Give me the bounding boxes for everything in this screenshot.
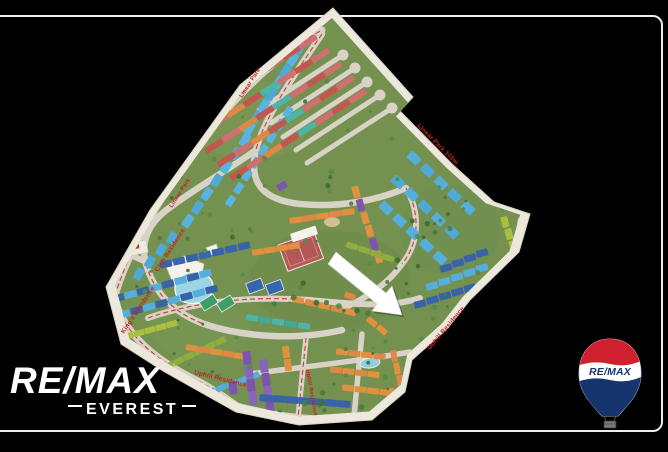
- tree: [342, 309, 345, 312]
- tree: [177, 319, 180, 322]
- tree: [320, 390, 326, 396]
- tree: [441, 385, 446, 390]
- cul-de-sac: [338, 50, 349, 61]
- tree: [423, 79, 426, 82]
- tree: [506, 294, 511, 299]
- tree: [366, 361, 370, 365]
- building-row: [259, 394, 272, 402]
- tree: [365, 311, 371, 317]
- tree: [511, 389, 515, 393]
- building-row: [337, 400, 350, 408]
- building-row: [179, 111, 199, 127]
- tree: [332, 382, 335, 385]
- divider-line: [182, 405, 196, 408]
- tree: [446, 305, 449, 308]
- tree: [405, 282, 408, 285]
- tree: [230, 229, 233, 232]
- office-name-row: EVEREST: [68, 402, 196, 418]
- tree: [300, 280, 306, 286]
- tree: [433, 222, 436, 225]
- tree: [489, 39, 492, 42]
- building-row: [272, 395, 285, 403]
- building-row: [430, 102, 441, 113]
- tree: [446, 212, 450, 216]
- building-row: [416, 90, 427, 101]
- tree: [382, 374, 388, 380]
- tree: [288, 301, 291, 304]
- tree: [502, 286, 507, 291]
- tree: [235, 336, 239, 340]
- building-row: [444, 114, 455, 125]
- tree: [483, 21, 486, 24]
- tree: [431, 317, 436, 322]
- tree: [444, 293, 447, 296]
- tree: [375, 14, 380, 19]
- tree: [385, 280, 389, 284]
- tree: [208, 212, 213, 217]
- building-row: [285, 396, 298, 404]
- tree: [126, 174, 129, 177]
- building-row: [373, 353, 386, 360]
- tree: [171, 125, 175, 129]
- tree: [202, 412, 205, 415]
- building-row: [196, 100, 216, 116]
- tree: [202, 248, 207, 253]
- cul-de-sac: [362, 77, 373, 88]
- basket-rope: [614, 416, 616, 421]
- tree: [514, 72, 517, 75]
- building-row: [367, 387, 380, 394]
- building-row: [259, 359, 269, 373]
- tree: [319, 400, 324, 405]
- tree: [435, 121, 439, 125]
- tree: [312, 80, 315, 83]
- building-row: [330, 366, 343, 373]
- remax-balloon-logo: RE/MAX: [573, 336, 647, 430]
- tree: [474, 311, 479, 316]
- tree: [108, 33, 114, 39]
- tree: [145, 71, 148, 74]
- tree: [394, 22, 397, 25]
- tree: [135, 285, 138, 288]
- tree: [440, 43, 443, 46]
- tree: [182, 142, 187, 147]
- tree: [157, 236, 161, 240]
- tree: [163, 176, 166, 179]
- tree: [395, 177, 399, 181]
- building-row: [454, 82, 465, 93]
- tree: [374, 40, 378, 44]
- tree: [438, 219, 442, 223]
- remax-everest-logo: RE/MAX EVEREST: [10, 362, 196, 418]
- tree: [170, 128, 174, 132]
- building-row: [361, 351, 374, 358]
- remax-wordmark: RE/MAX: [10, 362, 196, 401]
- tree: [368, 261, 373, 266]
- tree: [351, 328, 355, 332]
- tree: [415, 234, 420, 239]
- office-name: EVEREST: [86, 402, 178, 418]
- tree: [413, 418, 416, 421]
- tree: [487, 123, 492, 128]
- tree: [325, 183, 330, 188]
- tree: [477, 400, 482, 405]
- tree: [460, 25, 463, 28]
- tree: [433, 230, 438, 235]
- tree: [464, 200, 467, 203]
- tree: [178, 222, 181, 225]
- tree: [145, 145, 151, 151]
- tree: [144, 204, 147, 207]
- tree: [371, 347, 374, 350]
- tree: [164, 418, 168, 422]
- tree: [272, 301, 277, 306]
- tree: [288, 17, 291, 20]
- tree: [371, 352, 374, 355]
- tree: [241, 116, 244, 119]
- tree: [499, 82, 503, 86]
- balloon-top-red: [577, 336, 643, 366]
- tree: [432, 305, 438, 311]
- tree: [328, 175, 332, 179]
- building-row: [440, 70, 451, 81]
- tree: [410, 218, 415, 223]
- tree: [437, 185, 441, 189]
- tree: [248, 227, 251, 230]
- tree: [186, 237, 190, 241]
- tree: [189, 94, 193, 98]
- tree: [526, 43, 529, 46]
- cul-de-sac: [387, 103, 398, 114]
- tree: [512, 349, 516, 353]
- tree: [354, 308, 360, 314]
- tree: [105, 303, 107, 305]
- tree: [303, 99, 307, 103]
- building-row: [248, 392, 258, 406]
- tree: [262, 30, 268, 36]
- tree: [349, 202, 353, 206]
- tree: [346, 129, 350, 133]
- tree: [324, 79, 329, 84]
- tree: [316, 240, 318, 242]
- tree: [526, 140, 529, 143]
- tree: [247, 364, 252, 369]
- tree: [458, 364, 463, 369]
- basket-rope: [604, 416, 606, 421]
- building-row: [284, 359, 292, 372]
- tree: [173, 352, 176, 355]
- tree: [324, 300, 329, 305]
- building-row: [342, 384, 355, 391]
- tree: [201, 211, 204, 214]
- tree: [496, 120, 501, 125]
- tree: [322, 408, 327, 413]
- balloon-band-text: RE/MAX: [589, 366, 632, 378]
- tree: [447, 226, 452, 231]
- tree: [344, 373, 348, 377]
- tree: [263, 184, 267, 188]
- building-row: [428, 78, 439, 89]
- building-row: [261, 373, 271, 387]
- divider-line: [68, 405, 82, 408]
- tree: [396, 406, 401, 411]
- tree: [416, 264, 421, 269]
- tree: [390, 136, 394, 140]
- tree: [201, 323, 204, 326]
- tree: [369, 110, 372, 113]
- building-row: [442, 90, 453, 101]
- tree: [503, 151, 505, 153]
- tree: [494, 407, 499, 412]
- tree: [149, 270, 152, 273]
- tree: [329, 169, 335, 175]
- tree: [302, 400, 308, 406]
- tree: [122, 188, 127, 193]
- tree: [395, 257, 400, 262]
- building-row: [242, 351, 252, 365]
- cul-de-sac: [375, 90, 386, 101]
- promo-image: Club Residence King's Residence Uphill R…: [0, 0, 668, 452]
- tree: [236, 174, 241, 179]
- tree: [359, 404, 365, 410]
- tree: [529, 70, 534, 75]
- tree: [456, 10, 460, 14]
- tree: [475, 270, 480, 275]
- tree: [314, 300, 320, 306]
- tree: [531, 91, 537, 97]
- tree: [523, 33, 528, 38]
- tree: [336, 303, 342, 309]
- tree: [533, 227, 539, 233]
- tree: [177, 327, 180, 330]
- building-row: [246, 378, 256, 392]
- building-row: [324, 399, 337, 407]
- tree: [395, 267, 398, 270]
- tree: [243, 48, 246, 51]
- building-row: [355, 369, 368, 376]
- tree: [230, 235, 235, 240]
- tree: [462, 207, 465, 210]
- tree: [245, 53, 249, 57]
- tree: [433, 98, 435, 100]
- tree: [328, 189, 332, 193]
- tree: [138, 111, 143, 116]
- tree: [443, 196, 447, 200]
- tree: [407, 292, 411, 296]
- tree: [182, 111, 186, 115]
- tree: [386, 388, 389, 391]
- tree: [110, 245, 114, 249]
- tree: [452, 68, 456, 72]
- tree: [186, 269, 190, 273]
- tree: [107, 17, 113, 23]
- tree: [502, 330, 507, 335]
- tree: [107, 269, 111, 273]
- tree: [463, 24, 466, 27]
- balloon-basket: [604, 421, 616, 428]
- building-row: [367, 371, 380, 378]
- building-row: [282, 346, 290, 359]
- building-row: [354, 386, 367, 393]
- tree: [344, 347, 348, 351]
- playground: [324, 217, 340, 227]
- tree: [511, 420, 514, 423]
- tree: [163, 62, 169, 68]
- tree: [383, 339, 388, 344]
- cul-de-sac: [350, 63, 361, 74]
- tree: [178, 10, 181, 13]
- tree: [199, 68, 203, 72]
- building-row: [342, 368, 355, 375]
- tree: [422, 236, 426, 240]
- tree: [303, 238, 307, 242]
- tree: [262, 156, 267, 161]
- tree: [241, 273, 245, 277]
- tree: [435, 401, 439, 405]
- tree: [212, 157, 216, 161]
- tree: [141, 141, 145, 145]
- building-row: [348, 350, 361, 357]
- tree: [291, 295, 297, 301]
- building-row: [456, 102, 467, 113]
- building-row: [414, 66, 425, 77]
- tree: [425, 221, 430, 226]
